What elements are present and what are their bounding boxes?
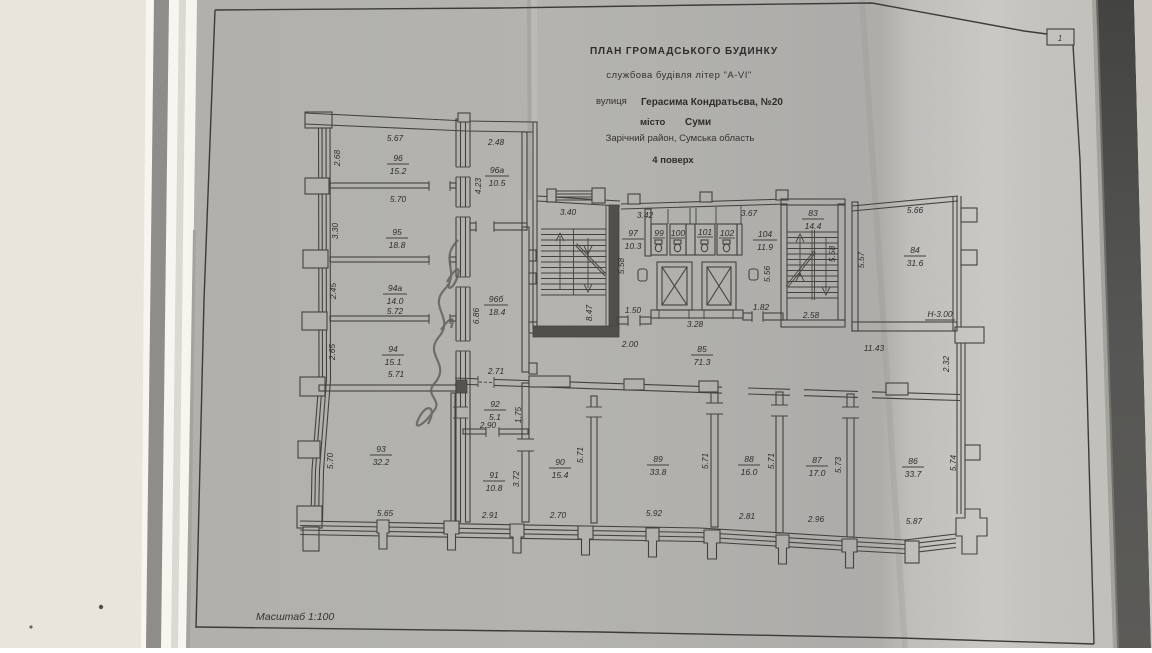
- svg-text:5.92: 5.92: [646, 508, 663, 518]
- svg-text:92: 92: [490, 399, 500, 409]
- svg-text:96б: 96б: [489, 294, 505, 304]
- svg-text:95: 95: [392, 227, 402, 237]
- svg-text:2.71: 2.71: [487, 366, 504, 376]
- svg-text:5.74: 5.74: [948, 455, 958, 472]
- svg-text:5.65: 5.65: [377, 508, 394, 518]
- svg-text:5.73: 5.73: [833, 457, 843, 474]
- svg-text:94а: 94а: [388, 283, 403, 293]
- svg-text:97: 97: [628, 228, 639, 238]
- svg-text:ПЛАН ГРОМАДСЬКОГО БУДИНКУ: ПЛАН ГРОМАДСЬКОГО БУДИНКУ: [590, 46, 778, 57]
- svg-text:5.71: 5.71: [388, 369, 404, 379]
- svg-text:5.57: 5.57: [856, 252, 866, 269]
- svg-text:15.4: 15.4: [552, 470, 569, 480]
- svg-text:5.71: 5.71: [575, 447, 585, 463]
- svg-text:33.8: 33.8: [650, 467, 667, 477]
- svg-text:94: 94: [388, 344, 398, 354]
- svg-text:4.23: 4.23: [473, 178, 483, 195]
- svg-text:Зарічний район, Сумська област: Зарічний район, Сумська область: [606, 133, 755, 144]
- svg-text:83: 83: [808, 208, 818, 218]
- svg-text:96: 96: [393, 153, 403, 163]
- svg-text:3.28: 3.28: [687, 319, 704, 329]
- svg-text:5.71: 5.71: [766, 453, 776, 469]
- svg-text:2.81: 2.81: [738, 511, 755, 521]
- svg-text:5.87: 5.87: [906, 516, 923, 526]
- svg-text:15.1: 15.1: [385, 357, 402, 367]
- svg-text:3.40: 3.40: [560, 207, 577, 217]
- svg-text:10.5: 10.5: [489, 178, 506, 188]
- svg-text:2.65: 2.65: [327, 344, 337, 362]
- svg-text:2.91: 2.91: [481, 510, 498, 520]
- svg-text:31.6: 31.6: [907, 258, 924, 268]
- svg-text:16.0: 16.0: [741, 467, 758, 477]
- svg-text:88: 88: [744, 454, 754, 464]
- svg-text:11.9: 11.9: [757, 242, 773, 252]
- svg-text:місто: місто: [640, 117, 665, 128]
- svg-text:71.3: 71.3: [694, 357, 711, 367]
- svg-text:86: 86: [908, 456, 918, 466]
- svg-text:2.00: 2.00: [621, 339, 639, 349]
- svg-text:2.70: 2.70: [549, 510, 567, 520]
- svg-text:5.58: 5.58: [827, 246, 837, 263]
- svg-text:Масштаб 1:100: Масштаб 1:100: [256, 611, 334, 623]
- svg-text:3.67: 3.67: [741, 208, 758, 218]
- svg-text:1.82: 1.82: [753, 302, 770, 312]
- svg-text:104: 104: [758, 229, 773, 239]
- svg-text:2.32: 2.32: [941, 356, 951, 374]
- svg-text:1.50: 1.50: [625, 305, 642, 315]
- svg-text:2.58: 2.58: [802, 310, 820, 320]
- svg-text:90: 90: [555, 457, 565, 467]
- svg-text:5.70: 5.70: [390, 194, 407, 204]
- svg-text:18.8: 18.8: [389, 240, 406, 250]
- svg-text:87: 87: [812, 455, 823, 465]
- svg-text:10.3: 10.3: [625, 241, 642, 251]
- svg-text:93: 93: [376, 444, 386, 454]
- svg-text:2.48: 2.48: [487, 137, 505, 147]
- svg-text:службова будівля літер "А-VI": службова будівля літер "А-VI": [606, 70, 752, 81]
- svg-text:5.58: 5.58: [616, 258, 626, 275]
- svg-text:3.72: 3.72: [511, 471, 521, 488]
- svg-text:Герасима Кондратьєва, №20: Герасима Кондратьєва, №20: [641, 97, 783, 108]
- svg-text:15.2: 15.2: [390, 166, 407, 176]
- svg-text:3.30: 3.30: [330, 223, 340, 240]
- svg-text:5.71: 5.71: [700, 453, 710, 469]
- svg-text:1.75: 1.75: [513, 407, 523, 424]
- svg-text:вулиця: вулиця: [596, 96, 627, 107]
- svg-text:33.7: 33.7: [905, 469, 923, 479]
- svg-text:14.0: 14.0: [387, 296, 404, 306]
- svg-text:101: 101: [698, 227, 713, 237]
- svg-text:91: 91: [489, 470, 499, 480]
- svg-text:84: 84: [910, 245, 920, 255]
- svg-text:18.4: 18.4: [489, 307, 506, 317]
- svg-text:2.90: 2.90: [479, 420, 497, 430]
- svg-text:85: 85: [697, 344, 707, 354]
- svg-text:2.96: 2.96: [807, 514, 825, 524]
- svg-text:1: 1: [1058, 34, 1062, 43]
- svg-text:11.43: 11.43: [864, 343, 885, 353]
- svg-text:17.0: 17.0: [809, 468, 826, 478]
- svg-text:2.45: 2.45: [328, 283, 338, 301]
- svg-text:89: 89: [653, 454, 663, 464]
- svg-text:Суми: Суми: [685, 117, 711, 128]
- svg-text:8.47: 8.47: [584, 305, 594, 322]
- svg-text:96а: 96а: [490, 165, 505, 175]
- svg-text:2.68: 2.68: [332, 150, 342, 168]
- svg-text:10.8: 10.8: [486, 483, 503, 493]
- svg-text:5.72: 5.72: [387, 306, 404, 316]
- svg-text:5.56: 5.56: [762, 266, 772, 283]
- svg-text:99: 99: [654, 228, 664, 238]
- svg-text:4 поверх: 4 поверх: [652, 155, 694, 166]
- svg-text:5.67: 5.67: [387, 133, 404, 143]
- svg-text:5.66: 5.66: [907, 205, 924, 215]
- svg-text:Н-3.00: Н-3.00: [928, 309, 953, 319]
- svg-text:14.4: 14.4: [805, 221, 822, 231]
- svg-text:102: 102: [720, 228, 735, 238]
- svg-text:100: 100: [671, 228, 686, 238]
- svg-text:5.70: 5.70: [325, 453, 335, 470]
- svg-text:6.86: 6.86: [471, 308, 481, 325]
- svg-text:32.2: 32.2: [373, 457, 390, 467]
